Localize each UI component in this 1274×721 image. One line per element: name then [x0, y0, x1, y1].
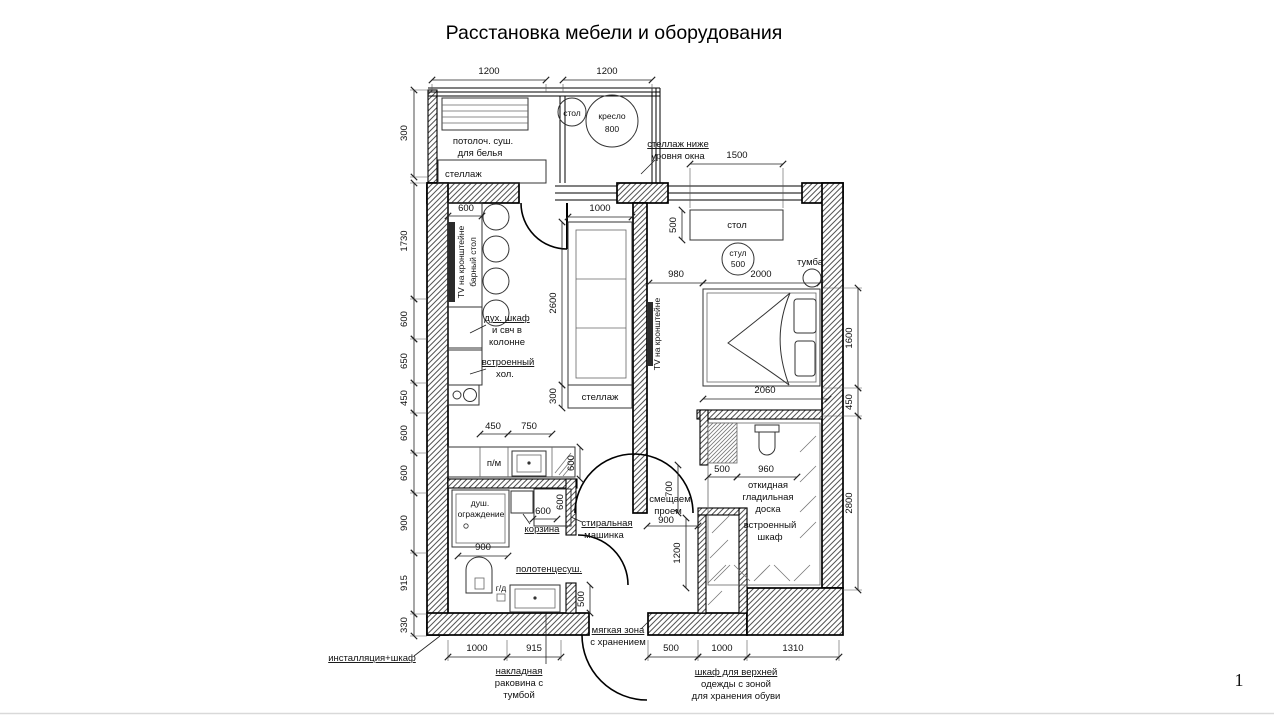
page-number: 1: [1235, 670, 1244, 690]
shift-opening-dim: 900: [658, 515, 674, 526]
balcony-door-arc: [521, 203, 567, 249]
balcony-armchair-size: 800: [605, 124, 619, 134]
bottom-wall-mid: [648, 613, 747, 635]
towel-dryer-label: полотенцесуш.: [516, 564, 582, 575]
kitchen-tv-label: TV на кронштейне: [456, 226, 466, 299]
kitchen-sink: [512, 451, 546, 476]
right-wall: [822, 183, 843, 588]
oven-leader: [470, 325, 486, 333]
ceiling-dryer-label-2: для белья: [458, 148, 503, 159]
wardrobe-ticks-right: [800, 436, 816, 538]
facade-pier: [617, 183, 668, 203]
balcony-armchair: [586, 95, 638, 147]
stove: [448, 385, 479, 405]
dim-top-1200-left: 1200: [478, 66, 499, 77]
bar-stools: [483, 204, 509, 326]
wardrobe-ticks-bottom: [714, 565, 810, 581]
bathroom: душ. ограждение 900 600 600 корзина стир…: [328, 489, 632, 701]
ironing-label-1: откидная: [748, 480, 788, 491]
dim-bottom-1310: 1310: [782, 643, 803, 654]
soft-zone-label-1: мягкая зона: [592, 625, 645, 636]
ceiling-dryer-label-1: потолоч. суш.: [453, 136, 513, 147]
balcony-shelf-label: стеллаж: [445, 169, 482, 180]
dim-bath-500: 500: [576, 591, 587, 607]
bottom-wall-right: [747, 588, 843, 635]
bathroom-right-wall-lower: [566, 583, 576, 613]
installation-leader: [414, 636, 440, 656]
dim-shower-900: 900: [475, 542, 491, 553]
dim-sofa-2600: 2600: [548, 292, 559, 313]
central-wall: [633, 203, 647, 513]
built-in-fridge: [448, 348, 482, 385]
ceiling-dryer: [442, 98, 528, 130]
dim-left-900: 900: [399, 515, 410, 531]
dim-counter-450: 450: [485, 421, 501, 432]
vanity-label-2: раковина с: [495, 678, 544, 689]
bedroom: 1500 стол 500 стул 500 тумба 980 2000 20…: [647, 150, 828, 399]
dim-left-330: 330: [399, 617, 410, 633]
basket-leader: [523, 514, 530, 524]
floor-plan-drawing: Расстановка мебели и оборудования 1: [0, 0, 1274, 721]
dim-desk-500: 500: [668, 217, 679, 233]
shower-label-2: ограждение: [458, 509, 505, 519]
dim-counter-750: 750: [521, 421, 537, 432]
bathroom-door-arc: [578, 535, 628, 585]
dim-left-915: 915: [399, 575, 410, 591]
oven-label-2: и свч в: [492, 325, 522, 336]
oven-column: [448, 307, 482, 348]
dim-1200: 1200: [672, 542, 683, 563]
dim-980: 980: [668, 269, 684, 280]
dim-bottom-1000: 1000: [711, 643, 732, 654]
balcony-armchair-label: кресло: [598, 111, 625, 121]
window-living: [555, 186, 617, 200]
wardrobe-shelf-unit: [708, 423, 737, 463]
shower-label-1: душ.: [471, 498, 489, 508]
coat-wardrobe-label-2: одежды с зоной: [701, 679, 771, 690]
dim-left-600a: 600: [399, 311, 410, 327]
pillow-2: [795, 341, 815, 376]
fridge-label-1: встроенный: [482, 357, 535, 368]
dim-left-650: 650: [399, 353, 410, 369]
dim-2000: 2000: [750, 269, 771, 280]
bar-table-label: барный стол: [468, 237, 478, 287]
dim-left-1730: 1730: [399, 230, 410, 251]
soft-zone-ticks: [708, 515, 730, 605]
dim-basket-600: 600: [535, 506, 551, 517]
builtin-label-2: шкаф: [757, 532, 782, 543]
shelf-below-window-label-1: стеллаж ниже: [647, 139, 709, 150]
ironing-board: [755, 425, 779, 455]
dim-right-450: 450: [844, 394, 855, 410]
dim-closet-960: 960: [758, 464, 774, 475]
dim-bottom-500: 500: [663, 643, 679, 654]
dim-top-1200-right: 1200: [596, 66, 617, 77]
installation-label: инсталляция+шкаф: [328, 653, 416, 664]
kitchen-tv: [448, 222, 455, 302]
ironing-label-3: доска: [755, 504, 781, 515]
sofa-mattress: [576, 230, 626, 378]
dim-left-600c: 600: [399, 465, 410, 481]
coat-wardrobe-label-1: шкаф для верхней: [695, 667, 778, 678]
page-title: Расстановка мебели и оборудования: [446, 22, 783, 44]
dim-closet-500: 500: [714, 464, 730, 475]
dim-left-300: 300: [399, 125, 410, 141]
washer-label-2: машинка: [584, 530, 624, 541]
dim-right-1600: 1600: [844, 327, 855, 348]
hyg-shower-label: г/д: [496, 583, 506, 593]
basket-label: корзина: [525, 524, 561, 535]
ceiling-dryer-bars: [442, 105, 528, 123]
dim-bath-915: 915: [526, 643, 542, 654]
vanity-sink: [510, 585, 560, 612]
shelf-below-window-label-2: уровня окна: [651, 151, 705, 162]
living-room: стеллаж 1000 2600 300: [548, 203, 632, 408]
toilet: [466, 557, 492, 593]
coat-wardrobe-label-3: для хранения обуви: [692, 691, 781, 702]
fridge-label-2: хол.: [496, 369, 514, 380]
chair-label: стул: [729, 248, 746, 258]
washer-label-1: стиральная: [581, 518, 632, 529]
blanket-fold-inner: [780, 293, 790, 385]
window-bedroom: [668, 186, 802, 200]
kitchen: TV на кронштейне барный стол дух. шкаф и…: [448, 203, 580, 479]
bottom-wall-left: [427, 613, 589, 635]
chair-size: 500: [731, 259, 745, 269]
balcony-table-label: стол: [563, 108, 581, 118]
oven-label-1: дух. шкаф: [484, 313, 530, 324]
fridge-leader: [470, 369, 486, 374]
vanity-label-1: накладная: [496, 666, 543, 677]
oven-label-3: колонне: [489, 337, 525, 348]
hyg-shower: [497, 594, 505, 601]
vanity-label-3: тумбой: [503, 690, 535, 701]
bed: [703, 289, 820, 386]
dim-shelf-300: 300: [548, 388, 559, 404]
builtin-label-1: встроенный: [744, 520, 797, 531]
dishwasher-label: п/м: [487, 458, 501, 469]
balcony-side-wall: [428, 90, 437, 183]
sofa: [568, 222, 632, 385]
sofa-shelf-label: стеллаж: [582, 392, 619, 403]
dim-right-2800: 2800: [844, 492, 855, 513]
dim-sofa-1000: 1000: [589, 203, 610, 214]
dim-bar-600: 600: [458, 203, 474, 214]
dim-washer-600: 600: [555, 494, 566, 510]
dim-counter-600: 600: [566, 455, 577, 471]
laundry-basket: [511, 491, 533, 513]
bedroom-tv-label: TV на кронштейне: [652, 298, 662, 371]
dim-700: 700: [664, 481, 675, 497]
balcony: потолоч. суш. для белья стеллаж стол кре…: [438, 95, 709, 183]
bathroom-top-wall: [448, 479, 577, 488]
dims-left-chain: 300 1730 600 650 450 600 600 900 915 330: [399, 90, 428, 636]
pillow-1: [794, 299, 816, 333]
dim-left-450: 450: [399, 390, 410, 406]
niche-left-wall: [698, 515, 706, 613]
left-ext-lines: [410, 183, 427, 636]
dim-window-1500: 1500: [726, 150, 747, 161]
ironing-label-2: гладильная: [742, 492, 793, 503]
shelf-below-window-leader: [641, 160, 655, 174]
left-wall: [427, 183, 448, 635]
dim-left-600b: 600: [399, 425, 410, 441]
blanket-fold: [728, 293, 790, 385]
dim-bath-1000: 1000: [466, 643, 487, 654]
bedroom-bottom-wall: [697, 410, 822, 419]
wardrobe-left-wall: [700, 410, 708, 465]
dim-2060: 2060: [754, 385, 775, 396]
nightstand-label: тумба: [797, 257, 824, 268]
soft-zone-label-2: с хранением: [590, 637, 646, 648]
nightstand: [803, 269, 821, 287]
desk-label: стол: [727, 220, 747, 231]
